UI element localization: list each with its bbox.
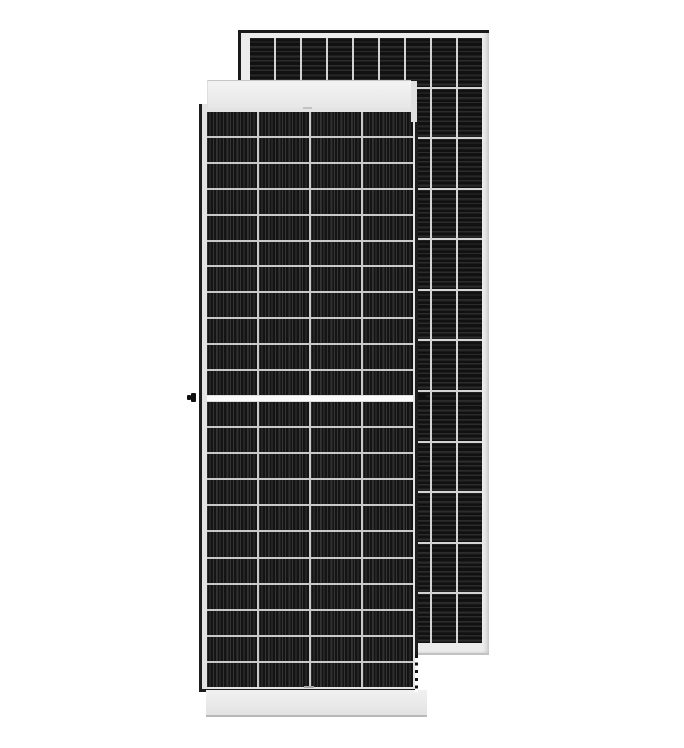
solar-cell xyxy=(363,506,413,530)
solar-cell xyxy=(207,371,257,395)
solar-cell xyxy=(363,267,413,291)
front-center-gap xyxy=(207,395,413,402)
solar-cell xyxy=(458,594,482,643)
solar-cell xyxy=(363,663,413,687)
solar-cell xyxy=(207,611,257,635)
solar-cell xyxy=(363,532,413,556)
solar-cell xyxy=(259,293,309,317)
solar-cell xyxy=(207,164,257,188)
solar-cell xyxy=(207,480,257,504)
solar-cell xyxy=(311,663,361,687)
frame-edge-dashed-artifact xyxy=(415,655,418,692)
solar-cell xyxy=(311,637,361,661)
solar-cell xyxy=(311,267,361,291)
solar-cell xyxy=(458,190,482,239)
solar-cell xyxy=(432,392,456,441)
solar-cell xyxy=(458,493,482,542)
solar-cell xyxy=(458,341,482,390)
solar-cell xyxy=(432,38,456,87)
solar-cell xyxy=(432,341,456,390)
solar-cell xyxy=(363,319,413,343)
solar-cell xyxy=(311,428,361,452)
solar-cell xyxy=(363,216,413,240)
solar-cell xyxy=(207,506,257,530)
solar-cell xyxy=(259,585,309,609)
solar-cell xyxy=(311,319,361,343)
frame-clip xyxy=(418,393,426,399)
solar-cell xyxy=(259,663,309,687)
solar-cell xyxy=(207,293,257,317)
solar-cell xyxy=(458,139,482,188)
solar-cell xyxy=(207,242,257,266)
front-cell-grid-lower xyxy=(207,402,413,687)
solar-cell xyxy=(207,345,257,369)
solar-cell xyxy=(259,242,309,266)
frame-marking-bottom xyxy=(304,686,314,688)
solar-cell xyxy=(207,267,257,291)
solar-cell xyxy=(259,637,309,661)
solar-cell xyxy=(432,190,456,239)
frame-marking-top xyxy=(303,107,312,109)
solar-cell xyxy=(432,544,456,593)
solar-cell xyxy=(458,240,482,289)
solar-cell xyxy=(363,402,413,426)
solar-cell xyxy=(363,242,413,266)
solar-cell xyxy=(458,392,482,441)
solar-cell xyxy=(432,240,456,289)
solar-cell xyxy=(207,637,257,661)
solar-cell xyxy=(432,493,456,542)
solar-cell xyxy=(207,319,257,343)
solar-cell xyxy=(432,139,456,188)
solar-cell xyxy=(311,138,361,162)
solar-cell xyxy=(207,138,257,162)
solar-cell xyxy=(259,480,309,504)
solar-cell xyxy=(432,291,456,340)
solar-cell xyxy=(363,190,413,214)
solar-cell xyxy=(259,454,309,478)
solar-cell xyxy=(311,164,361,188)
solar-cell xyxy=(363,164,413,188)
solar-cell xyxy=(311,371,361,395)
solar-cell xyxy=(207,585,257,609)
rear-frame-top-edge xyxy=(238,30,489,33)
solar-cell xyxy=(458,89,482,138)
solar-cell xyxy=(259,112,309,136)
solar-cell xyxy=(259,402,309,426)
solar-cell xyxy=(458,291,482,340)
solar-cell xyxy=(363,454,413,478)
grounding-lug-tip xyxy=(187,395,191,400)
solar-cell xyxy=(363,371,413,395)
solar-cell xyxy=(259,319,309,343)
grounding-lug xyxy=(191,393,196,402)
solar-cell xyxy=(259,559,309,583)
solar-cell xyxy=(311,190,361,214)
solar-cell xyxy=(311,532,361,556)
solar-cell xyxy=(363,559,413,583)
solar-cell xyxy=(259,371,309,395)
solar-cell xyxy=(259,190,309,214)
solar-cell xyxy=(311,293,361,317)
solar-cell xyxy=(259,506,309,530)
solar-cell xyxy=(363,611,413,635)
solar-cell xyxy=(207,663,257,687)
solar-cell xyxy=(458,544,482,593)
solar-cell xyxy=(207,216,257,240)
solar-cell xyxy=(311,454,361,478)
solar-cell xyxy=(259,216,309,240)
product-image xyxy=(0,0,684,748)
solar-cell xyxy=(311,402,361,426)
solar-cell xyxy=(259,345,309,369)
solar-cell xyxy=(311,506,361,530)
solar-cell xyxy=(311,559,361,583)
solar-cell xyxy=(311,611,361,635)
solar-cell xyxy=(259,267,309,291)
solar-cell xyxy=(311,112,361,136)
solar-cell xyxy=(207,112,257,136)
front-frame-bottom-cap xyxy=(206,690,427,717)
solar-cell xyxy=(311,480,361,504)
solar-cell xyxy=(363,345,413,369)
solar-cell xyxy=(311,216,361,240)
solar-cell xyxy=(458,443,482,492)
solar-cell xyxy=(207,428,257,452)
front-cell-grid-upper xyxy=(207,112,413,395)
front-frame-corner-tab xyxy=(411,81,417,122)
solar-cell xyxy=(311,585,361,609)
solar-cell xyxy=(458,38,482,87)
solar-cell xyxy=(207,454,257,478)
solar-cell xyxy=(259,428,309,452)
solar-cell xyxy=(259,611,309,635)
solar-cell xyxy=(207,559,257,583)
solar-cell xyxy=(311,242,361,266)
solar-cell xyxy=(363,138,413,162)
solar-cell xyxy=(207,532,257,556)
solar-cell xyxy=(207,402,257,426)
solar-cell xyxy=(432,89,456,138)
solar-cell xyxy=(363,428,413,452)
solar-cell xyxy=(432,443,456,492)
solar-cell xyxy=(259,532,309,556)
front-solar-panel xyxy=(199,104,418,692)
solar-cell xyxy=(259,164,309,188)
front-frame-top-cap xyxy=(207,80,411,108)
solar-cell xyxy=(363,480,413,504)
solar-cell xyxy=(363,637,413,661)
solar-cell xyxy=(207,190,257,214)
solar-cell xyxy=(259,138,309,162)
solar-cell xyxy=(363,112,413,136)
solar-cell xyxy=(311,345,361,369)
solar-cell xyxy=(363,293,413,317)
solar-cell xyxy=(363,585,413,609)
solar-cell xyxy=(432,594,456,643)
